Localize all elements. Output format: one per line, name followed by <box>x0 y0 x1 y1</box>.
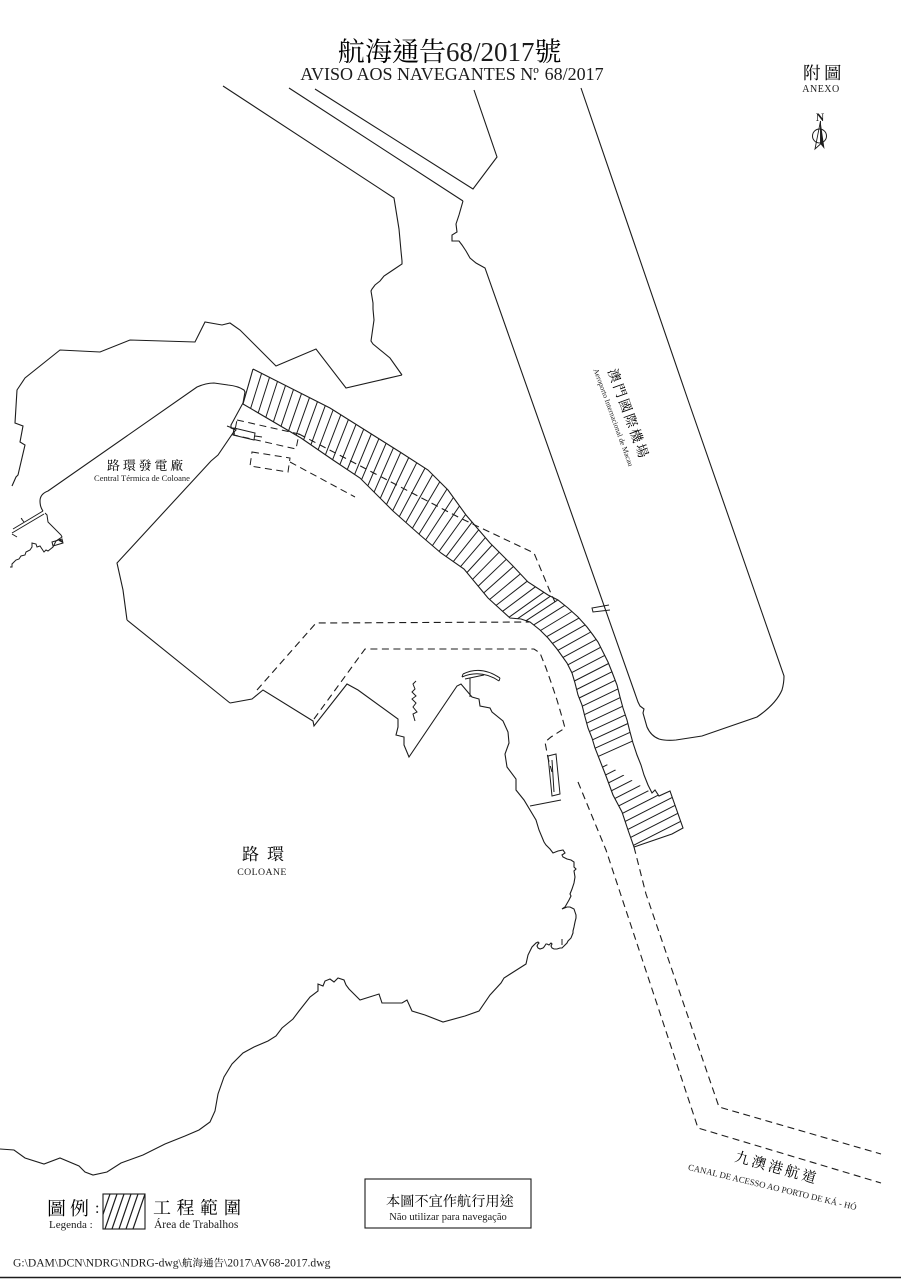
svg-text:ANEXO: ANEXO <box>802 84 840 95</box>
svg-text:Área de Trabalhos: Área de Trabalhos <box>154 1217 239 1231</box>
svg-text:AVISO AOS NAVEGANTES Nº. 68/20: AVISO AOS NAVEGANTES Nº. 68/2017 <box>300 64 603 84</box>
svg-text::: : <box>95 1200 99 1217</box>
svg-text:Legenda :: Legenda : <box>49 1219 93 1231</box>
svg-text:\2017\AV68-2017.dwg: \2017\AV68-2017.dwg <box>224 1257 331 1270</box>
svg-text:COLOANE: COLOANE <box>237 867 287 878</box>
svg-text:Não utilizar para navegação: Não utilizar para navegação <box>389 1212 506 1223</box>
svg-text:G:\DAM\DCN\NDRG\NDRG-dwg\: G:\DAM\DCN\NDRG\NDRG-dwg\ <box>13 1257 183 1270</box>
svg-text:Central Térmica de Coloane: Central Térmica de Coloane <box>94 473 190 483</box>
svg-text:68/2017: 68/2017 <box>446 37 535 67</box>
